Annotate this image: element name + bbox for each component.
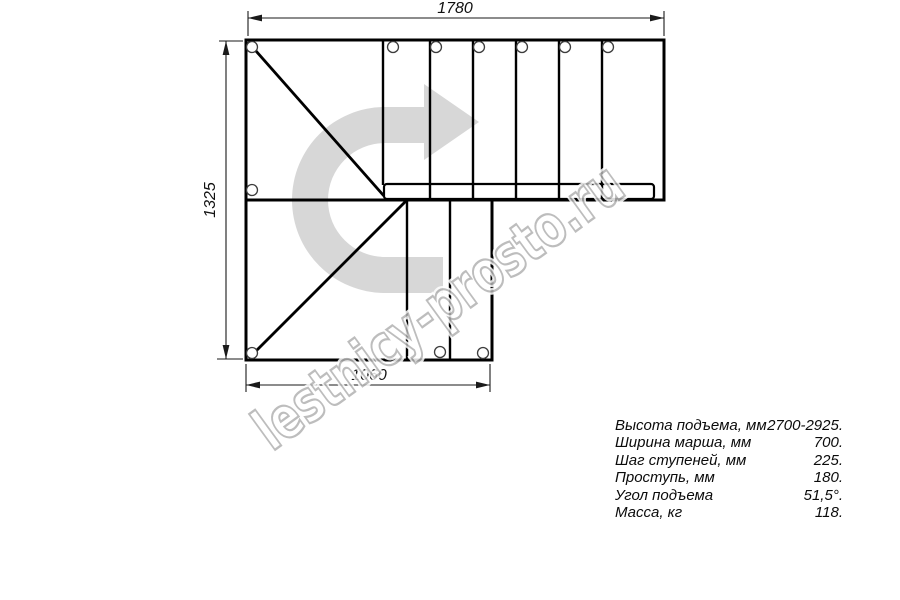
spec-table: Высота подъема, мм 2700-2925. Ширина мар… xyxy=(615,417,843,521)
spec-row-mass: Масса, кг 118. xyxy=(615,504,843,521)
spec-value: 180. xyxy=(814,469,843,486)
spec-row-angle: Угол подъема 51,5°. xyxy=(615,487,843,504)
spec-value: 51,5°. xyxy=(804,487,843,504)
dimension-top-value: 1780 xyxy=(437,0,473,17)
spec-value: 225. xyxy=(814,452,843,469)
spec-label: Высота подъема, мм xyxy=(615,417,767,434)
spec-label: Масса, кг xyxy=(615,504,682,521)
spec-label: Проступь, мм xyxy=(615,469,715,486)
spec-value: 700. xyxy=(814,434,843,451)
spec-value: 118. xyxy=(815,504,843,521)
spec-label: Ширина марша, мм xyxy=(615,434,751,451)
spec-row-tread: Проступь, мм 180. xyxy=(615,469,843,486)
staircase-drawing-page: 1780 1325 1060 lestnicy-prosto.ru lestni… xyxy=(0,0,900,600)
spec-value: 2700-2925. xyxy=(767,417,843,434)
dimension-left xyxy=(217,41,243,359)
spec-row-height: Высота подъема, мм 2700-2925. xyxy=(615,417,843,434)
dimension-left-value: 1325 xyxy=(202,182,219,218)
spec-row-step-pitch: Шаг ступеней, мм 225. xyxy=(615,452,843,469)
spec-row-flight-width: Ширина марша, мм 700. xyxy=(615,434,843,451)
spec-label: Угол подъема xyxy=(615,487,713,504)
spec-label: Шаг ступеней, мм xyxy=(615,452,746,469)
